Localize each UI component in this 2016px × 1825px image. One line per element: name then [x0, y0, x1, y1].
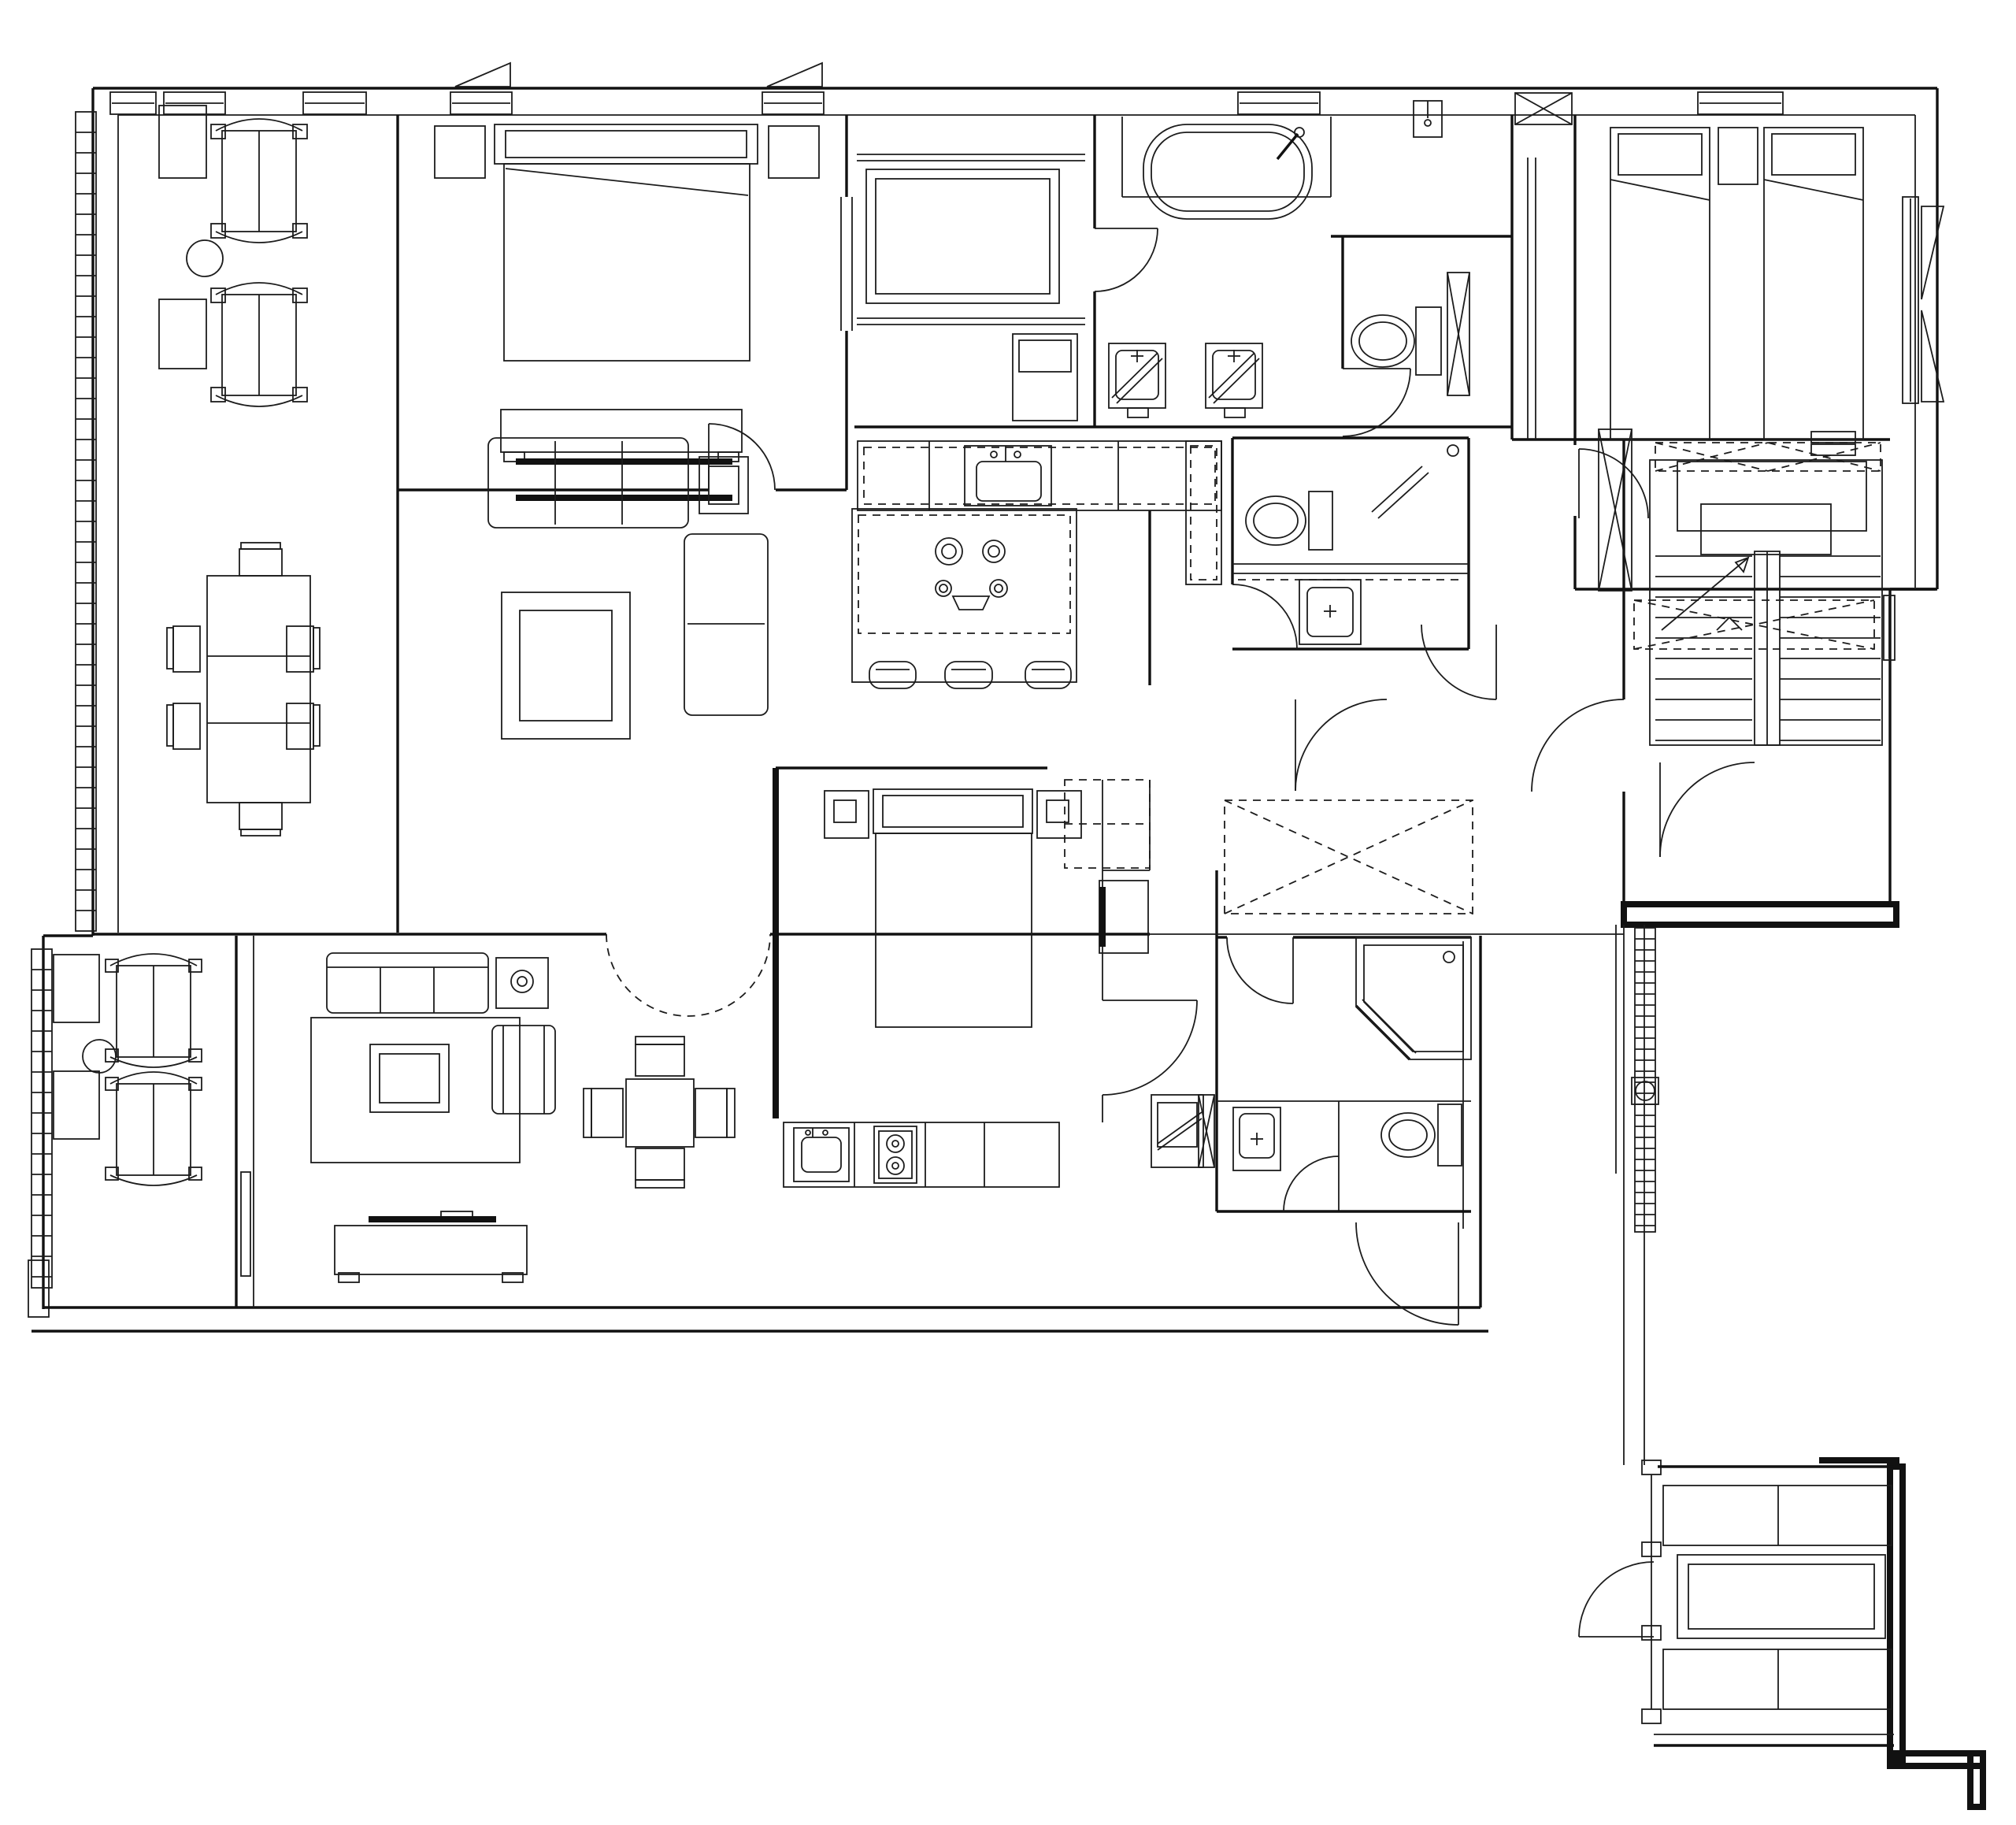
kitchenette-and-laundry	[784, 1095, 1214, 1187]
exterior-walls	[28, 88, 1937, 1331]
corridor-closet	[1515, 93, 1572, 440]
living-room-furniture	[488, 438, 768, 739]
lower-terrace-furniture	[54, 954, 202, 1185]
kitchen-island	[852, 509, 1077, 688]
windows	[110, 92, 1918, 660]
kitchen-counter	[858, 441, 1221, 584]
hall-doors-and-void	[1225, 625, 1624, 914]
upper-terrace-furniture	[159, 106, 320, 836]
master-bedroom-furniture	[435, 124, 819, 490]
family-room-furniture	[311, 934, 1458, 1325]
rear-path	[1616, 925, 1658, 1465]
entry-pavilion	[1579, 1460, 1983, 1807]
second-bedroom-furniture	[825, 780, 1197, 1095]
second-bathroom-fixtures	[1227, 937, 1471, 1211]
master-bathroom-fixtures	[1109, 101, 1442, 436]
dressing-room-furniture	[857, 154, 1085, 421]
floor-plan-page	[0, 0, 2016, 1825]
suite-doors	[1095, 228, 1158, 291]
staircase	[1599, 429, 1882, 857]
powder-room-fixtures	[1232, 273, 1469, 649]
floor-plan-drawing	[0, 0, 2016, 1825]
louver-screens	[31, 112, 96, 1288]
